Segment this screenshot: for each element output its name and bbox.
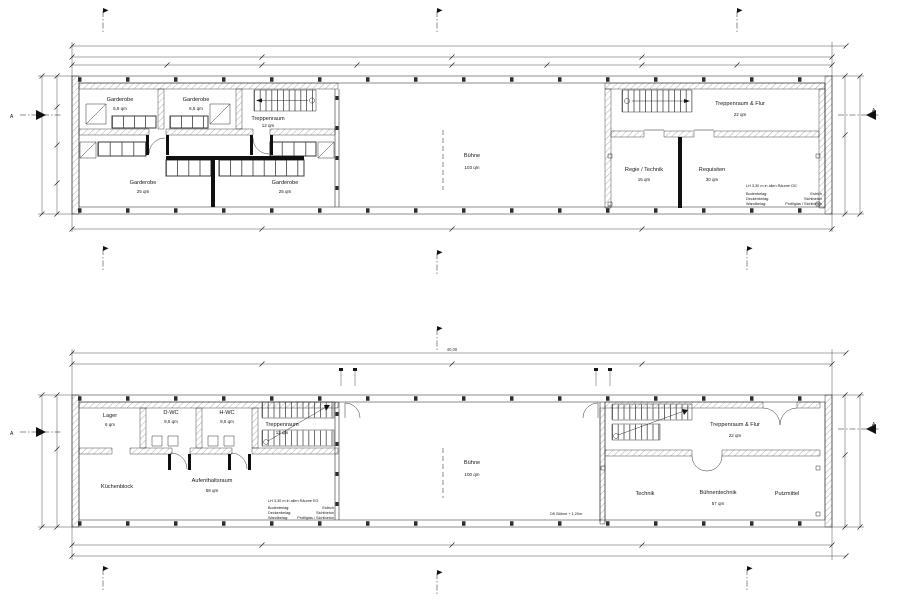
room-label: Garderobe	[183, 97, 210, 103]
axis-flags	[103, 8, 753, 594]
og-section-marker-left: A	[10, 110, 62, 120]
og-lockers-outline	[98, 116, 316, 176]
room-label: Treppenraum & Flur	[715, 101, 765, 107]
note-ceiling-label: Deckenbelag:	[268, 511, 291, 515]
og-partition-walls	[146, 135, 682, 208]
room-label: Aufenthaltsraum	[192, 478, 233, 484]
note-wall-label: Wandbelag:	[268, 516, 288, 520]
room-label: Regie / Technik	[625, 167, 663, 173]
room-area: 30 qm	[706, 177, 719, 182]
note-floor-value: Estrich	[810, 192, 822, 196]
room-label: Lager	[103, 413, 117, 419]
axis-flag	[103, 566, 109, 590]
axis-flag	[737, 8, 743, 32]
eg-door-arcs	[171, 403, 797, 471]
room-area: 6 qm	[105, 422, 115, 427]
section-letter: A	[10, 114, 14, 120]
note-clear-height: LH 3,30 m in allen Räume EG	[268, 499, 318, 503]
eg-partition-walls	[168, 368, 612, 470]
og-dimension-ticks	[40, 44, 863, 232]
room-label: Requisiten	[699, 167, 725, 173]
plan-eg: Lager 6 qm D-WC 9,5 qm H-WC 9,5 qm Trepp…	[10, 347, 880, 560]
room-area: 9,5 qm	[164, 419, 178, 424]
room-label: D-WC	[163, 410, 178, 416]
axis-flag	[747, 566, 753, 590]
room-label: Treppenraum	[265, 422, 299, 428]
room-label: Garderobe	[130, 180, 157, 186]
room-area: 12 qm	[276, 430, 289, 435]
axis-flag	[747, 246, 753, 270]
eg-wc-fixtures	[152, 436, 234, 446]
room-area: 9,5 qm	[220, 419, 234, 424]
room-area: 22 qm	[729, 433, 742, 438]
section-letter: A	[10, 431, 14, 437]
room-label: Garderobe	[107, 97, 134, 103]
stage-level-note: OK Bühne + 1,20m	[550, 512, 582, 516]
room-label: Treppenraum	[251, 116, 285, 122]
room-label: Bühnentechnik	[699, 490, 736, 496]
floorplan-sheet: Garderobe 6,5 qm Garderobe 6,5 qm Treppe…	[0, 0, 900, 600]
og-stair-left	[254, 90, 316, 111]
note-clear-height: LH 3,30 m in allen Räume OG	[746, 184, 797, 188]
room-label: Küchenblock	[101, 484, 133, 490]
note-ceiling-label: Deckenbelag:	[746, 197, 769, 201]
room-area: 6,5 qm	[189, 106, 203, 111]
room-label: Technik	[636, 491, 655, 497]
room-label: Treppenraum & Flur	[710, 422, 760, 428]
eg-stair-right	[612, 404, 692, 440]
axis-flag	[437, 326, 443, 350]
room-area: 15 qm	[638, 177, 651, 182]
og-section-marker-right: A	[838, 108, 880, 120]
note-wall-label: Wandbelag:	[746, 202, 766, 206]
note-floor-label: Bodenbelag:	[268, 506, 289, 510]
axis-flag	[437, 570, 443, 594]
room-label: Putzmittel	[775, 491, 800, 497]
room-label: H-WC	[219, 410, 234, 416]
room-label: Bühne	[464, 460, 480, 466]
axis-flag	[437, 250, 443, 274]
og-stair-right	[622, 90, 692, 112]
room-area: 103 qm	[464, 165, 479, 170]
room-area: 58 qm	[206, 488, 219, 493]
axis-flag	[103, 8, 109, 32]
axis-flag	[103, 246, 109, 270]
room-area: 57 qm	[712, 501, 725, 506]
note-wall-value: Profilglas / Sichtbeton	[297, 516, 334, 520]
eg-section-marker-left: A	[10, 427, 62, 437]
eg-wall-outline	[72, 395, 832, 527]
room-area: 12 qm	[262, 123, 275, 128]
note-floor-label: Bodenbelag:	[746, 192, 767, 196]
eg-wall-hatch	[72, 395, 832, 527]
eg-section-marker-right: A	[838, 422, 880, 434]
note-floor-value: Estrich	[322, 506, 334, 510]
room-area: 25 qm	[279, 189, 292, 194]
room-area: 25 qm	[137, 189, 150, 194]
axis-flag	[437, 8, 443, 32]
note-ceiling-value: Sichtbeton	[804, 197, 822, 201]
room-area: 6,5 qm	[113, 106, 127, 111]
room-label: Garderobe	[272, 180, 299, 186]
room-area: 22 qm	[734, 112, 747, 117]
note-ceiling-value: Sichtbeton	[316, 511, 334, 515]
og-finish-notes: LH 3,30 m in allen Räume OG Bodenbelag: …	[746, 184, 822, 206]
overall-dimension: 40,00	[447, 347, 458, 352]
room-area: 100 qm	[464, 472, 479, 477]
eg-finish-notes: LH 3,30 m in allen Räume EG Bodenbelag: …	[268, 499, 334, 520]
plan-og: Garderobe 6,5 qm Garderobe 6,5 qm Treppe…	[10, 42, 880, 232]
note-wall-value: Profilglas / Sichtbeton	[785, 202, 822, 206]
floorplan-drawing: Garderobe 6,5 qm Garderobe 6,5 qm Treppe…	[0, 0, 900, 600]
room-label: Bühne	[464, 153, 480, 159]
